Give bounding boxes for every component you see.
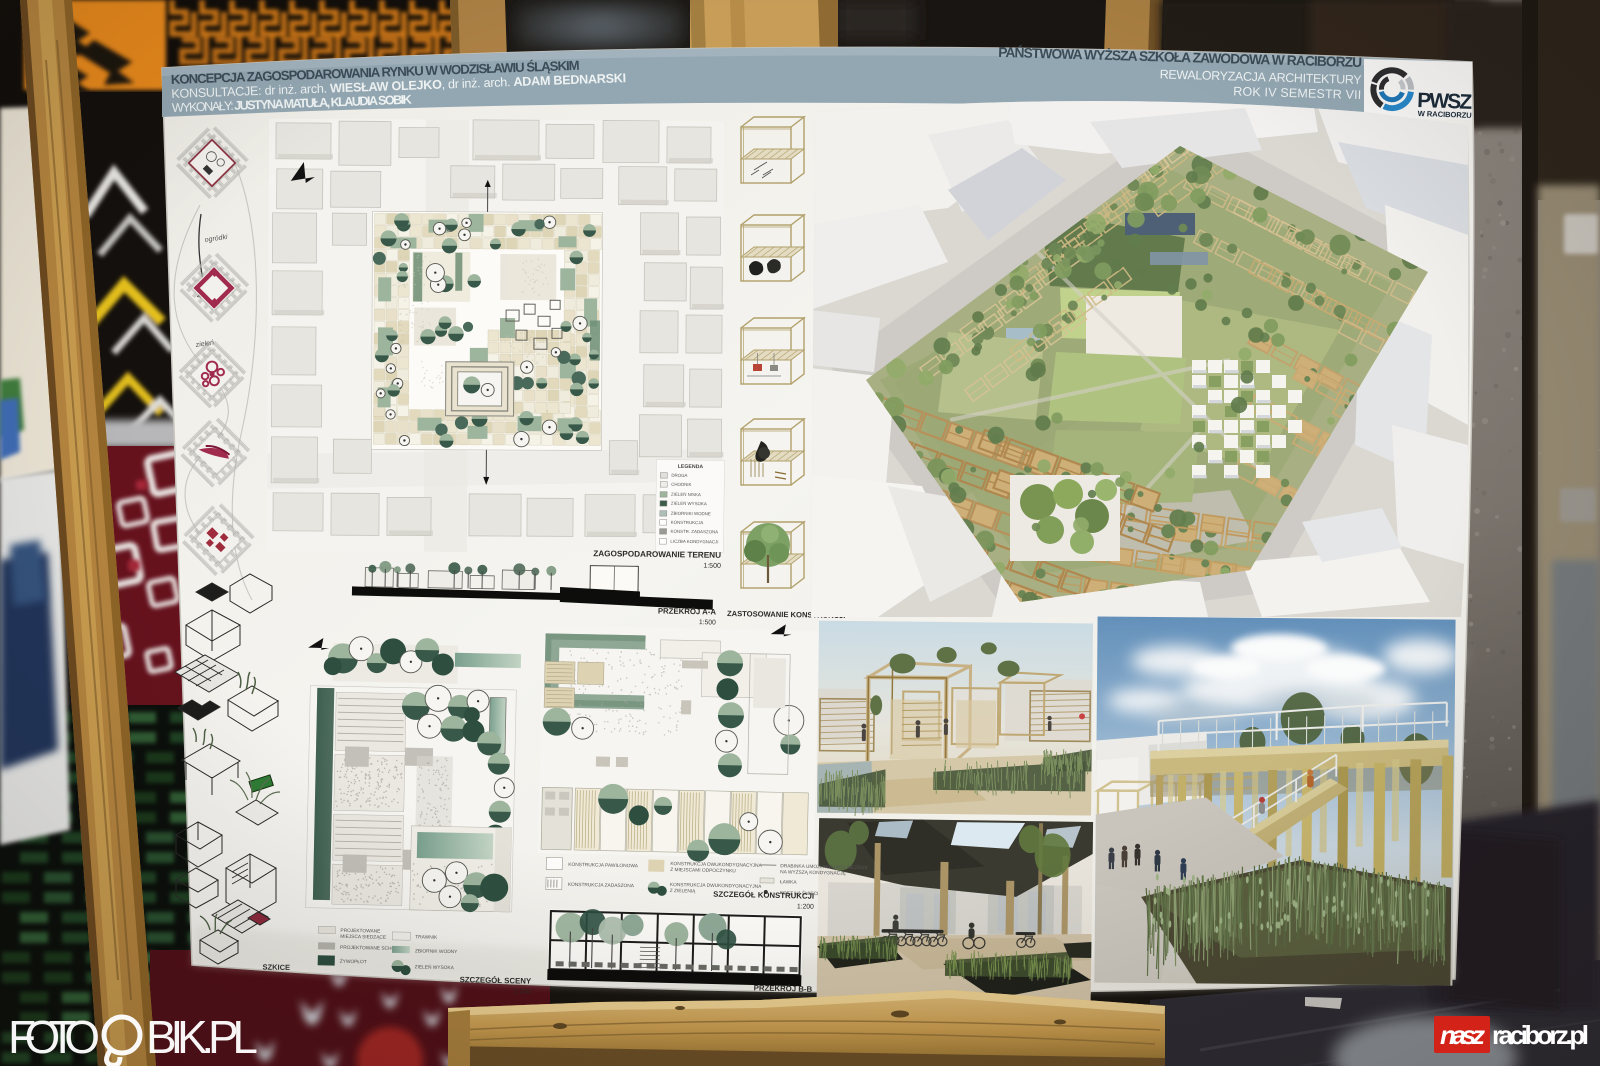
- svg-text:FOTO: FOTO: [8, 1011, 100, 1063]
- svg-text:BIK.PL: BIK.PL: [146, 1011, 258, 1063]
- svg-text:raciborz.pl: raciborz.pl: [1492, 1020, 1589, 1050]
- svg-text:nasz: nasz: [1440, 1020, 1485, 1050]
